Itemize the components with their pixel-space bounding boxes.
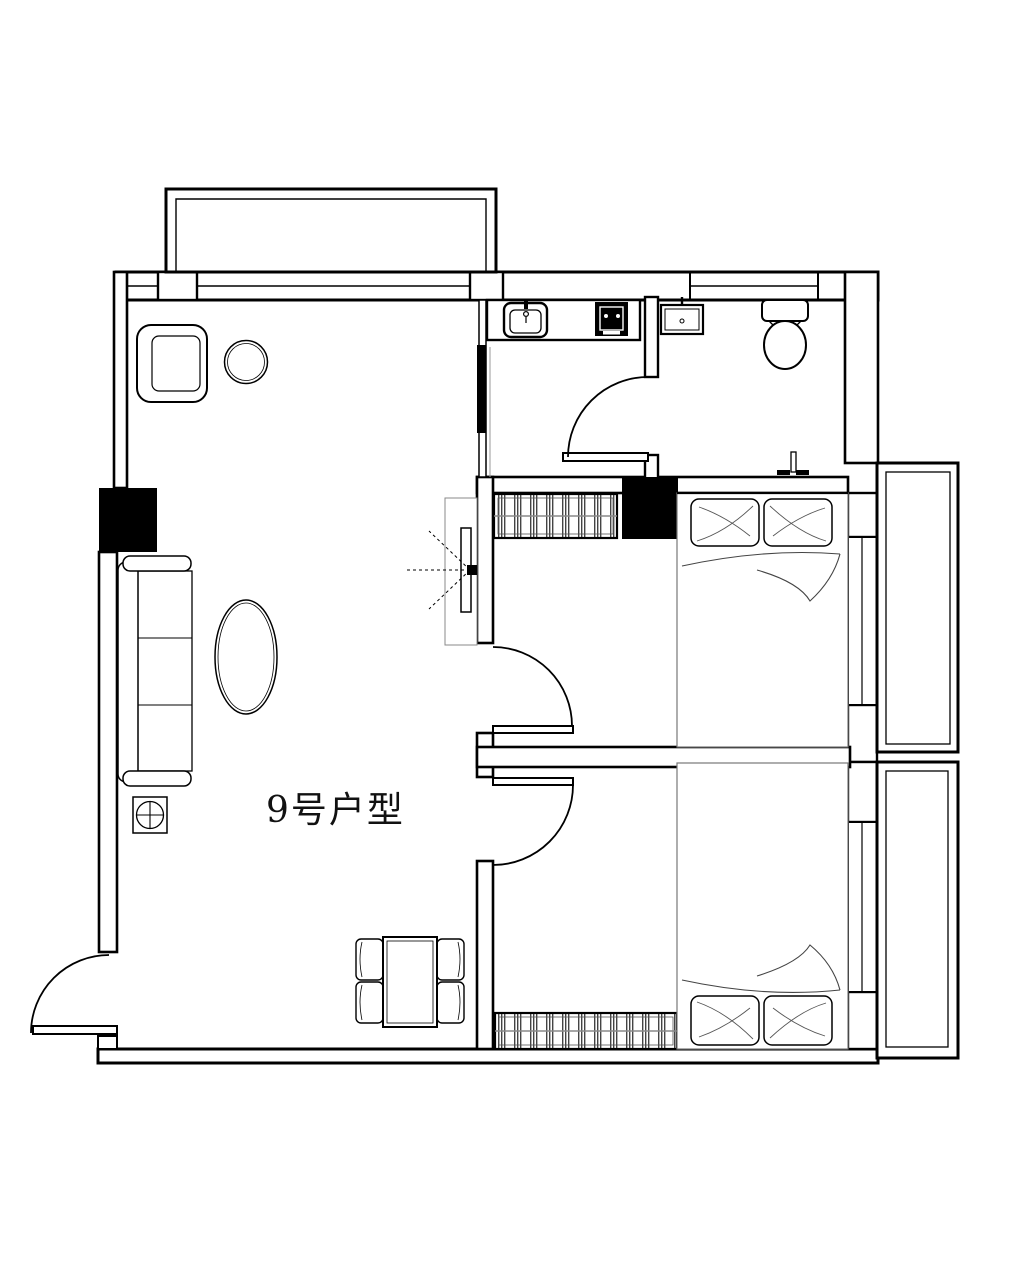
wall-left-lower	[99, 552, 117, 952]
wall-right-seg2	[848, 705, 877, 762]
wall-faucet-handle-left	[777, 470, 790, 475]
wall-faucet-handle-right	[796, 470, 809, 475]
wall-right-bathroom	[845, 272, 878, 463]
wall-living-bedroom1	[477, 477, 493, 643]
coffee-table-icon	[215, 600, 277, 714]
unit-label: 9号户型	[266, 790, 405, 831]
wardrobe-icon	[495, 1013, 677, 1049]
entry-door-leaf	[33, 1026, 117, 1034]
bed1-pillow-right	[764, 499, 832, 546]
wall-faucet-stem	[791, 452, 796, 472]
bathroom-door-arc	[568, 377, 648, 457]
double-bed-1-icon	[677, 493, 848, 747]
coffee-table-outer	[215, 600, 277, 714]
balcony-junction-right	[470, 272, 503, 300]
bathroom-door-leaf	[563, 453, 648, 461]
closet-icon	[494, 494, 617, 538]
stove-burner-left	[604, 314, 608, 318]
bed1-pillow-left	[691, 499, 759, 546]
sofa-icon	[118, 556, 192, 786]
entry-door-swing-icon	[31, 955, 117, 1034]
bedroom1-door-swing-icon	[493, 647, 573, 733]
wall-bottom	[98, 1049, 878, 1063]
floor-plan: 9号户型	[0, 0, 1024, 1280]
dining-table-icon	[383, 937, 437, 1027]
wall-kitchen-bath-upper	[645, 297, 658, 377]
sliding-door-panel	[477, 345, 486, 433]
stove-icon	[595, 302, 628, 336]
sink-faucet	[524, 301, 528, 309]
balcony-top	[166, 189, 496, 272]
column-hall	[622, 477, 678, 539]
wall-left-upper	[114, 272, 127, 488]
wall-faucet-icon	[777, 452, 809, 475]
toilet-bowl	[764, 321, 806, 369]
tv-cabinet-icon	[405, 498, 477, 645]
stove-burner-right	[616, 314, 620, 318]
toilet-tank	[762, 300, 808, 321]
dining-set-icon	[356, 937, 464, 1027]
floor-plan-canvas: 9号户型	[0, 0, 1024, 1280]
wall-right-seg4	[848, 992, 877, 1049]
column-left	[99, 488, 157, 552]
bathroom-sink-icon	[661, 297, 703, 334]
bedroom-2	[495, 763, 848, 1049]
sofa-seat	[137, 571, 192, 771]
sofa-arm-bottom	[123, 771, 191, 786]
bedroom2-door-arc	[493, 785, 573, 865]
stool-icon	[225, 341, 268, 384]
wall-bottom-step	[98, 1036, 117, 1049]
toilet-icon	[762, 300, 808, 369]
sofa-back	[118, 562, 138, 782]
double-bed-2-icon	[677, 763, 848, 1049]
entry-door-arc	[31, 955, 109, 1033]
balcony-right-upper	[877, 463, 958, 752]
armchair-icon	[137, 325, 207, 402]
bathroom	[661, 297, 809, 475]
stool-outer	[225, 341, 268, 384]
wall-right-seg1	[848, 493, 877, 537]
bedroom2-door-leaf	[493, 778, 573, 785]
sofa-arm-top	[123, 556, 191, 571]
wall-living-bedroom2	[477, 861, 493, 1049]
balcony-junction-left	[158, 272, 197, 300]
stove-panel	[603, 331, 620, 335]
bedroom1-door-arc	[493, 647, 572, 726]
balcony-right-lower	[877, 762, 958, 1058]
living-room	[118, 325, 477, 1027]
wall-right-seg3	[848, 762, 877, 822]
bedroom2-door-swing-icon	[493, 778, 573, 865]
bedroom1-door-leaf	[493, 726, 573, 733]
bathroom-door-swing-icon	[563, 377, 648, 461]
kitchen	[487, 300, 640, 340]
bed2-pillow-right	[764, 996, 832, 1045]
planter-icon	[133, 797, 167, 833]
